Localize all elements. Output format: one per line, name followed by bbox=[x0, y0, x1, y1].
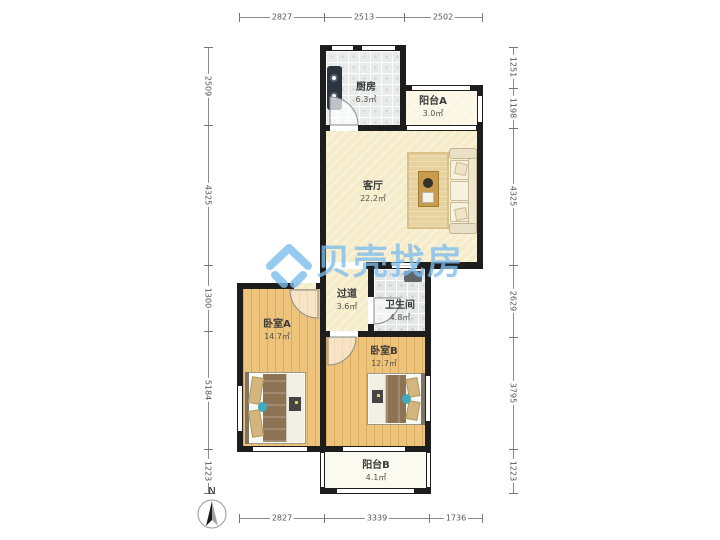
compass-icon bbox=[195, 497, 229, 531]
kitchen-window-1 bbox=[331, 45, 354, 51]
wall bbox=[320, 45, 326, 452]
floor-plan: 厨房6.3㎡ 阳台A3.0㎡ 客厅22.2㎡ 过道3.6㎡ 卫生间4.8㎡ 卧室… bbox=[0, 0, 720, 540]
wall bbox=[320, 262, 326, 269]
wall bbox=[320, 331, 330, 337]
label-bedroom-b: 卧室B12.7㎡ bbox=[370, 346, 398, 369]
label-living: 客厅22.2㎡ bbox=[360, 181, 386, 204]
wall bbox=[425, 269, 431, 337]
wall bbox=[358, 125, 406, 131]
balcony-a-slider bbox=[406, 125, 477, 131]
bedroom-b-window-right bbox=[425, 375, 431, 422]
wall bbox=[415, 488, 431, 494]
wall bbox=[366, 262, 483, 269]
label-balcony-b: 阳台B4.1㎡ bbox=[362, 460, 390, 483]
bedroom-a-window-left bbox=[237, 385, 243, 432]
bedroom-a-window-bottom bbox=[252, 446, 308, 452]
balcony-b-window-left bbox=[320, 452, 325, 488]
kitchen-window-2 bbox=[361, 45, 396, 51]
bedroom-b-balcony-slider bbox=[342, 446, 406, 452]
balcony-a-window-top bbox=[411, 85, 471, 91]
bedroom-a-door bbox=[290, 290, 318, 318]
bedroom-b-door bbox=[328, 337, 356, 365]
wall bbox=[320, 125, 330, 131]
compass: N bbox=[192, 486, 232, 538]
balcony-b-window-right bbox=[426, 452, 431, 488]
wall bbox=[316, 283, 322, 289]
label-bathroom: 卫生间4.8㎡ bbox=[385, 300, 415, 323]
balcony-b-window-bottom bbox=[336, 488, 415, 494]
wall bbox=[358, 331, 431, 337]
label-bedroom-a: 卧室A14.7㎡ bbox=[263, 319, 291, 342]
label-balcony-a: 阳台A3.0㎡ bbox=[419, 96, 447, 119]
compass-n-label: N bbox=[192, 486, 232, 497]
wall bbox=[368, 269, 374, 297]
bathroom-window bbox=[391, 262, 418, 269]
wall bbox=[237, 283, 294, 289]
balcony-a-window-right bbox=[477, 95, 483, 123]
label-kitchen: 厨房6.3㎡ bbox=[356, 82, 377, 105]
wall bbox=[320, 488, 336, 494]
label-hallway: 过道3.6㎡ bbox=[337, 289, 358, 312]
kitchen-door bbox=[330, 97, 358, 125]
